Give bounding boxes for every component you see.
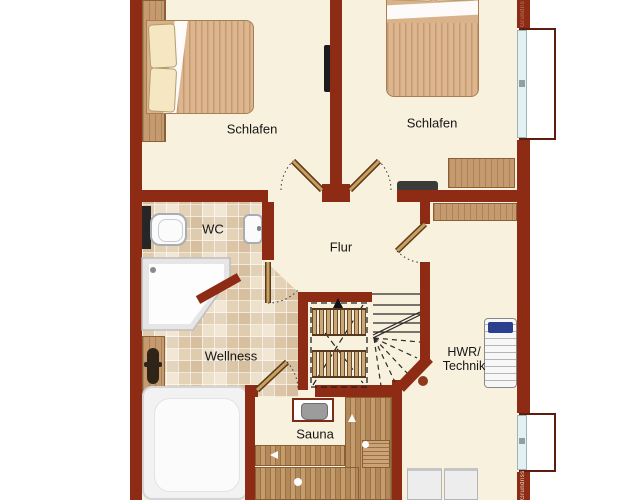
pillow [390,0,434,2]
bench-dot-icon [362,441,369,448]
bathtub [142,386,248,500]
wall-horizontal-right [397,190,530,202]
room-label-bedroom-left: Schlafen [227,122,278,137]
bed-blanket [387,23,478,96]
wall-sauna-top [315,385,402,397]
watermark-text: Grundriss [518,1,529,27]
wall-bedroom-divider-stub [322,184,350,202]
room-label-wc: WC [202,222,224,237]
floor-plan: Schlafen Schlafen WC Flur Wellness Sauna… [0,0,636,500]
sauna-bench-lower [255,467,359,500]
room-label-utility: HWR/ Technik [443,345,485,373]
bench-dot-icon [294,478,302,486]
appliance [444,468,478,500]
wall-utility-left [420,202,430,224]
bench-arrow-left-icon [270,451,278,459]
wall-left-outer [130,0,142,500]
bed-sheet-fold [387,1,478,20]
washer-dryer [484,318,517,388]
wall-horizontal-left [130,190,268,202]
wall-stair-left [298,292,308,390]
stair-slatted-flight [312,308,366,336]
sauna-heater [292,398,334,422]
vanity-faucet [144,362,162,367]
toilet-seat [158,219,183,242]
toilet [150,213,187,246]
room-label-utility-line1: HWR/ [443,345,485,359]
appliance [407,468,442,500]
watermark-text: Grundriss [518,471,529,500]
stair-slatted-flight [312,350,366,378]
room-label-hall: Flur [330,240,352,255]
pillow [148,23,177,68]
double-bed-left [146,20,254,114]
pillow [148,67,177,112]
dresser-bedroom [448,158,515,188]
dresser-utility [433,203,517,221]
wall-sauna-right [392,380,402,500]
wall-utility-left [420,262,430,360]
room-label-sauna: Sauna [296,427,334,442]
wall-right-outer [517,140,530,413]
wall-sauna-left [245,385,255,500]
faucet-dot [257,226,261,231]
bed-blanket [177,21,253,113]
wall-stair-top [298,292,372,302]
bathtub-basin [154,398,240,492]
room-label-bedroom-right: Schlafen [407,116,458,131]
sauna-bench-upper [255,445,345,466]
window-handle [519,80,525,87]
wall-wc-right [262,202,274,260]
room-label-utility-line2: Technik [443,359,485,373]
wall-bedroom-divider [330,0,342,186]
sauna-heater-stones [301,403,328,420]
bench-arrow-up-icon [348,414,356,422]
double-bed-right [386,0,479,97]
room-label-wellness: Wellness [205,349,258,364]
washer-control-panel [488,322,513,333]
window-handle [519,438,525,444]
